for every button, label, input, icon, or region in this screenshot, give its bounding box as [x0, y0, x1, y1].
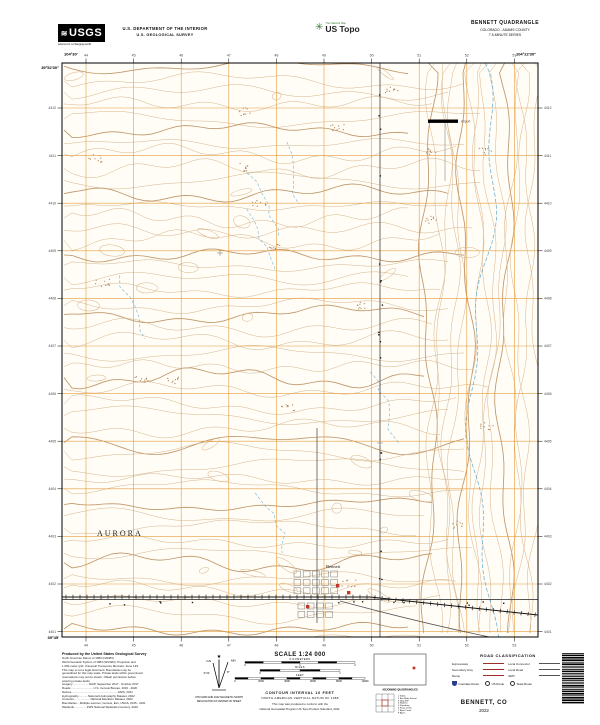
svg-text:4405: 4405 — [544, 439, 552, 443]
svg-text:104°22'30": 104°22'30" — [516, 52, 536, 57]
svg-text:0°21': 0°21' — [204, 671, 211, 675]
svg-text:Bennett: Bennett — [326, 564, 341, 569]
dept-line1: U.S. DEPARTMENT OF THE INTERIOR — [106, 26, 224, 31]
svg-text:53: 53 — [512, 644, 516, 648]
usgs-tagline: science for a changing world — [58, 43, 118, 46]
svg-text:1: 1 — [339, 671, 341, 675]
svg-text:0: 0 — [234, 679, 236, 683]
svg-text:Airport: Airport — [461, 120, 471, 124]
sheet-name: BENNETT, CO — [428, 700, 540, 706]
map-location-diagram: ADJOINING QUADRANGLES1 Sable2 Box Elder … — [368, 652, 432, 714]
us-shield-icon — [485, 681, 490, 686]
svg-text:50: 50 — [370, 644, 374, 648]
svg-text:4409: 4409 — [544, 249, 552, 253]
svg-text:4406: 4406 — [48, 392, 56, 396]
svg-text:48: 48 — [274, 54, 278, 58]
svg-text:39°52'30": 39°52'30" — [41, 65, 59, 70]
state-shield-icon — [510, 681, 515, 686]
svg-text:4410: 4410 — [544, 201, 552, 205]
department-heading: U.S. DEPARTMENT OF THE INTERIOR U.S. GEO… — [106, 26, 224, 37]
ustopo-brand: US Topo — [325, 25, 359, 33]
barcode — [562, 653, 590, 705]
svg-text:104°30': 104°30' — [64, 52, 78, 57]
produced-by-lines: North American Datum of 1983 (NAD83)Worl… — [62, 657, 200, 709]
svg-text:49: 49 — [322, 54, 326, 58]
svg-text:4407: 4407 — [544, 344, 552, 348]
topographic-map: AURORABennettAirport44444545464647474848… — [40, 48, 560, 653]
svg-text:44: 44 — [84, 54, 88, 58]
svg-text:0: 0 — [259, 671, 261, 675]
conformance-note-1: This map was produced to conform with th… — [225, 702, 375, 706]
route-symbols: Interstate RouteUS RouteState Route — [452, 681, 564, 686]
svg-text:6000: 6000 — [310, 679, 316, 683]
svg-text:4401: 4401 — [48, 630, 56, 634]
route-symbol-interstate: Interstate Route — [452, 681, 479, 686]
svg-text:52: 52 — [465, 644, 469, 648]
quad-title-block: BENNETT QUADRANGLE COLORADO - ADAMS COUN… — [425, 20, 585, 37]
svg-text:ADJOINING QUADRANGLES: ADJOINING QUADRANGLES — [382, 688, 418, 692]
svg-text:4411: 4411 — [544, 154, 551, 158]
svg-text:4409: 4409 — [48, 249, 56, 253]
national-map-icon: ✳ — [315, 23, 323, 33]
svg-text:4408: 4408 — [48, 297, 56, 301]
route-label: US Route — [492, 682, 505, 686]
road-class-sample — [483, 663, 504, 665]
production-credits: Produced by the United States Geological… — [62, 652, 200, 709]
svg-text:46: 46 — [179, 54, 183, 58]
svg-text:8 Byers: 8 Byers — [398, 711, 406, 714]
usgs-wave-icon: ≋ — [61, 29, 68, 38]
road-class-title: ROAD CLASSIFICATION — [452, 653, 564, 658]
svg-text:51: 51 — [417, 644, 421, 648]
road-class-sample — [539, 669, 560, 670]
svg-text:2000: 2000 — [258, 679, 264, 683]
road-classification-legend: ROAD CLASSIFICATION ExpresswayLocal Conn… — [452, 653, 564, 686]
svg-text:GN: GN — [207, 659, 212, 663]
road-class-sample — [483, 675, 504, 676]
svg-text:49: 49 — [322, 644, 326, 648]
vertical-datum: NORTH AMERICAN VERTICAL DATUM OF 1988 — [225, 696, 375, 700]
svg-text:4405: 4405 — [48, 439, 56, 443]
svg-text:4402: 4402 — [48, 582, 56, 586]
svg-text:48: 48 — [274, 644, 278, 648]
us-topo-map-sheet: ≋ USGS science for a changing world U.S.… — [0, 0, 600, 725]
svg-text:4410: 4410 — [48, 201, 56, 205]
road-class-label: Expressway — [452, 662, 483, 666]
svg-text:4408: 4408 — [544, 297, 552, 301]
svg-text:44: 44 — [84, 644, 88, 648]
scale-block: SCALE 1:24 000 KILOMETERS012MILES01FEET0… — [225, 652, 375, 711]
road-class-rows: ExpresswayLocal ConnectorSecondary HwyLo… — [452, 661, 564, 679]
produced-by-heading: Produced by the United States Geological… — [62, 652, 200, 656]
svg-text:8000: 8000 — [336, 679, 342, 683]
svg-text:47: 47 — [227, 644, 231, 648]
svg-text:4404: 4404 — [544, 487, 552, 491]
svg-text:0: 0 — [244, 663, 246, 667]
svg-text:AURORA: AURORA — [97, 529, 143, 538]
svg-text:4401: 4401 — [544, 630, 552, 634]
svg-text:4412: 4412 — [544, 106, 552, 110]
svg-text:39°45': 39°45' — [48, 635, 59, 640]
road-class-label: 4WD — [508, 674, 539, 678]
road-class-label: Secondary Hwy — [452, 668, 483, 672]
ustopo-logo: ✳ The National Map US Topo — [315, 22, 360, 33]
sheet-imprint: BENNETT, CO 2022 — [428, 700, 540, 713]
credit-line: Wetlands................FWS National Wet… — [62, 706, 200, 710]
svg-text:4402: 4402 — [544, 582, 552, 586]
quad-title: BENNETT QUADRANGLE — [425, 20, 585, 26]
road-class-sample — [539, 675, 560, 676]
svg-text:4403: 4403 — [48, 535, 56, 539]
svg-text:4407: 4407 — [48, 344, 56, 348]
svg-text:51: 51 — [417, 54, 421, 58]
road-class-label: Ramp — [452, 674, 483, 678]
svg-text:★: ★ — [217, 654, 222, 660]
svg-text:2: 2 — [354, 663, 356, 667]
svg-text:4403: 4403 — [544, 535, 552, 539]
road-class-label: Local Road — [508, 668, 539, 672]
svg-text:47: 47 — [227, 54, 231, 58]
svg-text:46: 46 — [179, 644, 183, 648]
route-label: Interstate Route — [459, 682, 480, 686]
conformance-note-2: National Geospatial Program US Topo Prod… — [225, 707, 375, 711]
svg-text:4411: 4411 — [49, 154, 56, 158]
svg-text:4404: 4404 — [48, 487, 56, 491]
svg-text:4412: 4412 — [48, 106, 56, 110]
contour-interval: CONTOUR INTERVAL 10 FEET — [225, 691, 375, 695]
route-symbol-us: US Route — [485, 681, 504, 686]
svg-text:45: 45 — [132, 54, 136, 58]
svg-text:50: 50 — [370, 54, 374, 58]
quad-subtitle: COLORADO - ADAMS COUNTY — [425, 28, 585, 32]
road-class-row: Ramp4WD — [452, 673, 564, 679]
road-class-sample — [483, 669, 504, 670]
usgs-logo-text: USGS — [69, 27, 102, 39]
svg-text:45: 45 — [132, 644, 136, 648]
svg-text:KILOMETERS: KILOMETERS — [290, 658, 311, 661]
road-class-sample — [539, 663, 560, 664]
interstate-shield-icon — [452, 681, 457, 686]
quad-series: 7.5-MINUTE SERIES — [425, 33, 585, 37]
svg-text:4000: 4000 — [284, 679, 290, 683]
svg-text:52: 52 — [465, 54, 469, 58]
road-class-label: Local Connector — [508, 662, 539, 666]
usgs-logo: ≋ USGS — [58, 24, 105, 42]
svg-text:4406: 4406 — [544, 392, 552, 396]
route-symbol-state: State Route — [510, 681, 532, 686]
route-label: State Route — [517, 682, 532, 686]
svg-text:MILES: MILES — [295, 665, 305, 669]
svg-text:FEET: FEET — [296, 673, 304, 677]
sheet-year: 2022 — [428, 708, 540, 713]
scale-bars: KILOMETERS012MILES01FEET0200040006000800… — [225, 658, 375, 684]
dept-line2: U.S. GEOLOGICAL SURVEY — [106, 33, 224, 37]
